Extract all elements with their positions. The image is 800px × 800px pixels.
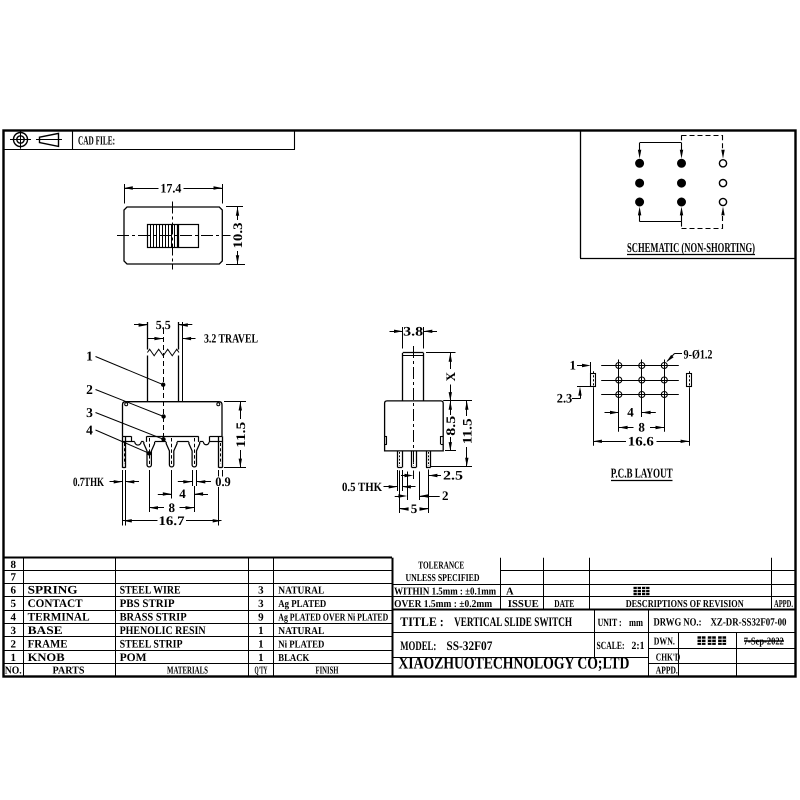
svg-text:2.5: 2.5 (443, 468, 464, 483)
svg-text:PBS STRIP: PBS STRIP (120, 598, 175, 610)
svg-text:BASE: BASE (28, 625, 63, 637)
svg-text:UNIT :: UNIT : (598, 617, 622, 629)
svg-text:5.5: 5.5 (156, 318, 171, 332)
svg-text:2:1: 2:1 (632, 640, 645, 652)
svg-text:5: 5 (10, 598, 16, 610)
svg-text:4: 4 (627, 405, 634, 420)
svg-text:17.4: 17.4 (160, 181, 181, 196)
svg-text:SCHEMATIC (NON-SHORTING): SCHEMATIC (NON-SHORTING) (627, 240, 755, 255)
svg-text:XIAOZHUOTECHNOLOGY CO;LTD: XIAOZHUOTECHNOLOGY CO;LTD (398, 654, 629, 673)
svg-text:0.5 THK: 0.5 THK (342, 480, 382, 494)
svg-text:WITHIN 1.5mm : ±0.1mm: WITHIN 1.5mm : ±0.1mm (394, 586, 496, 597)
svg-text:3.8: 3.8 (403, 323, 424, 338)
svg-text:P.C.B LAYOUT: P.C.B LAYOUT (611, 466, 673, 481)
svg-text:1: 1 (258, 652, 264, 664)
svg-text:2.3: 2.3 (557, 391, 573, 406)
svg-text:1: 1 (258, 625, 264, 637)
svg-text:0.9: 0.9 (215, 474, 231, 489)
svg-text:A: A (506, 586, 514, 597)
svg-text:BLACK: BLACK (278, 653, 310, 664)
svg-text:APPD.: APPD. (656, 666, 678, 677)
svg-text:0.7THK: 0.7THK (73, 475, 104, 489)
svg-text:STEEL STRIP: STEEL STRIP (120, 638, 183, 650)
svg-text:16.6: 16.6 (628, 434, 655, 449)
svg-text:9-Ø1.2: 9-Ø1.2 (684, 347, 713, 361)
svg-text:8: 8 (638, 420, 645, 435)
svg-text:1: 1 (570, 357, 577, 372)
svg-text:POM: POM (120, 652, 147, 664)
svg-text:6: 6 (10, 585, 16, 597)
svg-text:NATURAL: NATURAL (278, 626, 324, 637)
svg-text:DATE: DATE (554, 599, 574, 610)
svg-text:VERTICAL SLIDE SWITCH: VERTICAL SLIDE SWITCH (454, 614, 572, 629)
svg-text:BRASS STRIP: BRASS STRIP (120, 611, 187, 623)
svg-text:XZ-DR-SS32F07-00: XZ-DR-SS32F07-00 (711, 617, 787, 629)
svg-text:3: 3 (258, 585, 264, 597)
svg-text:2: 2 (10, 638, 16, 650)
svg-text:mm: mm (629, 617, 643, 629)
svg-text:11.5: 11.5 (233, 421, 248, 448)
svg-text:DWN.: DWN. (654, 637, 675, 648)
svg-text:4: 4 (86, 423, 93, 438)
svg-text:Ag PLATED OVER Ni PLATED: Ag PLATED OVER Ni PLATED (278, 612, 388, 623)
svg-text:TITLE :: TITLE : (400, 614, 444, 629)
svg-text:NATURAL: NATURAL (278, 586, 324, 597)
svg-text:APPD.: APPD. (774, 599, 793, 610)
svg-text:7: 7 (10, 572, 16, 584)
svg-text:PHENOLIC RESIN: PHENOLIC RESIN (120, 625, 207, 637)
svg-text:KNOB: KNOB (28, 652, 65, 664)
svg-text:TOLERANCE: TOLERANCE (418, 560, 464, 571)
svg-text:3: 3 (10, 625, 16, 637)
svg-text:1: 1 (10, 652, 16, 664)
svg-text:FRAME: FRAME (28, 638, 68, 650)
svg-text:8.5: 8.5 (443, 415, 458, 436)
svg-text:2: 2 (86, 382, 93, 397)
svg-text:ISSUE: ISSUE (508, 599, 539, 610)
svg-text:Ag PLATED: Ag PLATED (278, 599, 326, 610)
svg-text:3.2 TRAVEL: 3.2 TRAVEL (204, 332, 258, 346)
svg-text:PARTS: PARTS (53, 666, 85, 677)
svg-text:1: 1 (86, 349, 93, 364)
svg-text:1: 1 (258, 638, 264, 650)
svg-text:9: 9 (258, 611, 264, 623)
svg-text:16.7: 16.7 (159, 513, 186, 528)
svg-text:4: 4 (10, 611, 16, 623)
svg-text:8: 8 (10, 559, 16, 571)
svg-text:DRWG NO.:: DRWG NO.: (654, 617, 702, 629)
svg-text:OVER 1.5mm : ±0.2mm: OVER 1.5mm : ±0.2mm (394, 599, 492, 610)
svg-text:Ni PLATED: Ni PLATED (278, 639, 324, 650)
svg-text:DESCRIPTIONS OF REVISION: DESCRIPTIONS OF REVISION (626, 599, 744, 610)
svg-text:10.3: 10.3 (230, 222, 245, 249)
svg-text:SPRING: SPRING (28, 585, 78, 597)
svg-text:MODEL:: MODEL: (400, 638, 436, 653)
svg-text:FINISH: FINISH (316, 666, 339, 677)
svg-text:CONTACT: CONTACT (28, 598, 83, 610)
svg-text:3: 3 (258, 598, 264, 610)
svg-text:SCALE:: SCALE: (597, 640, 625, 652)
svg-text:11.5: 11.5 (459, 418, 474, 445)
svg-text:4: 4 (179, 486, 186, 501)
svg-text:TERMINAL: TERMINAL (28, 611, 90, 623)
svg-text:STEEL WIRE: STEEL WIRE (120, 585, 181, 597)
svg-text:Q'TY: Q'TY (255, 666, 268, 677)
svg-text:X: X (443, 371, 458, 381)
svg-text:3: 3 (86, 405, 93, 420)
svg-text:5: 5 (411, 501, 418, 516)
svg-text:CAD FILE:: CAD FILE: (78, 133, 115, 147)
svg-text:NO.: NO. (5, 666, 22, 677)
svg-text:CHK'D: CHK'D (656, 652, 681, 663)
svg-text:MATERIALS: MATERIALS (167, 666, 208, 677)
svg-text:SS-32F07: SS-32F07 (446, 638, 492, 653)
svg-text:2: 2 (442, 488, 449, 503)
svg-text:UNLESS SPECIFIED: UNLESS SPECIFIED (406, 573, 480, 584)
